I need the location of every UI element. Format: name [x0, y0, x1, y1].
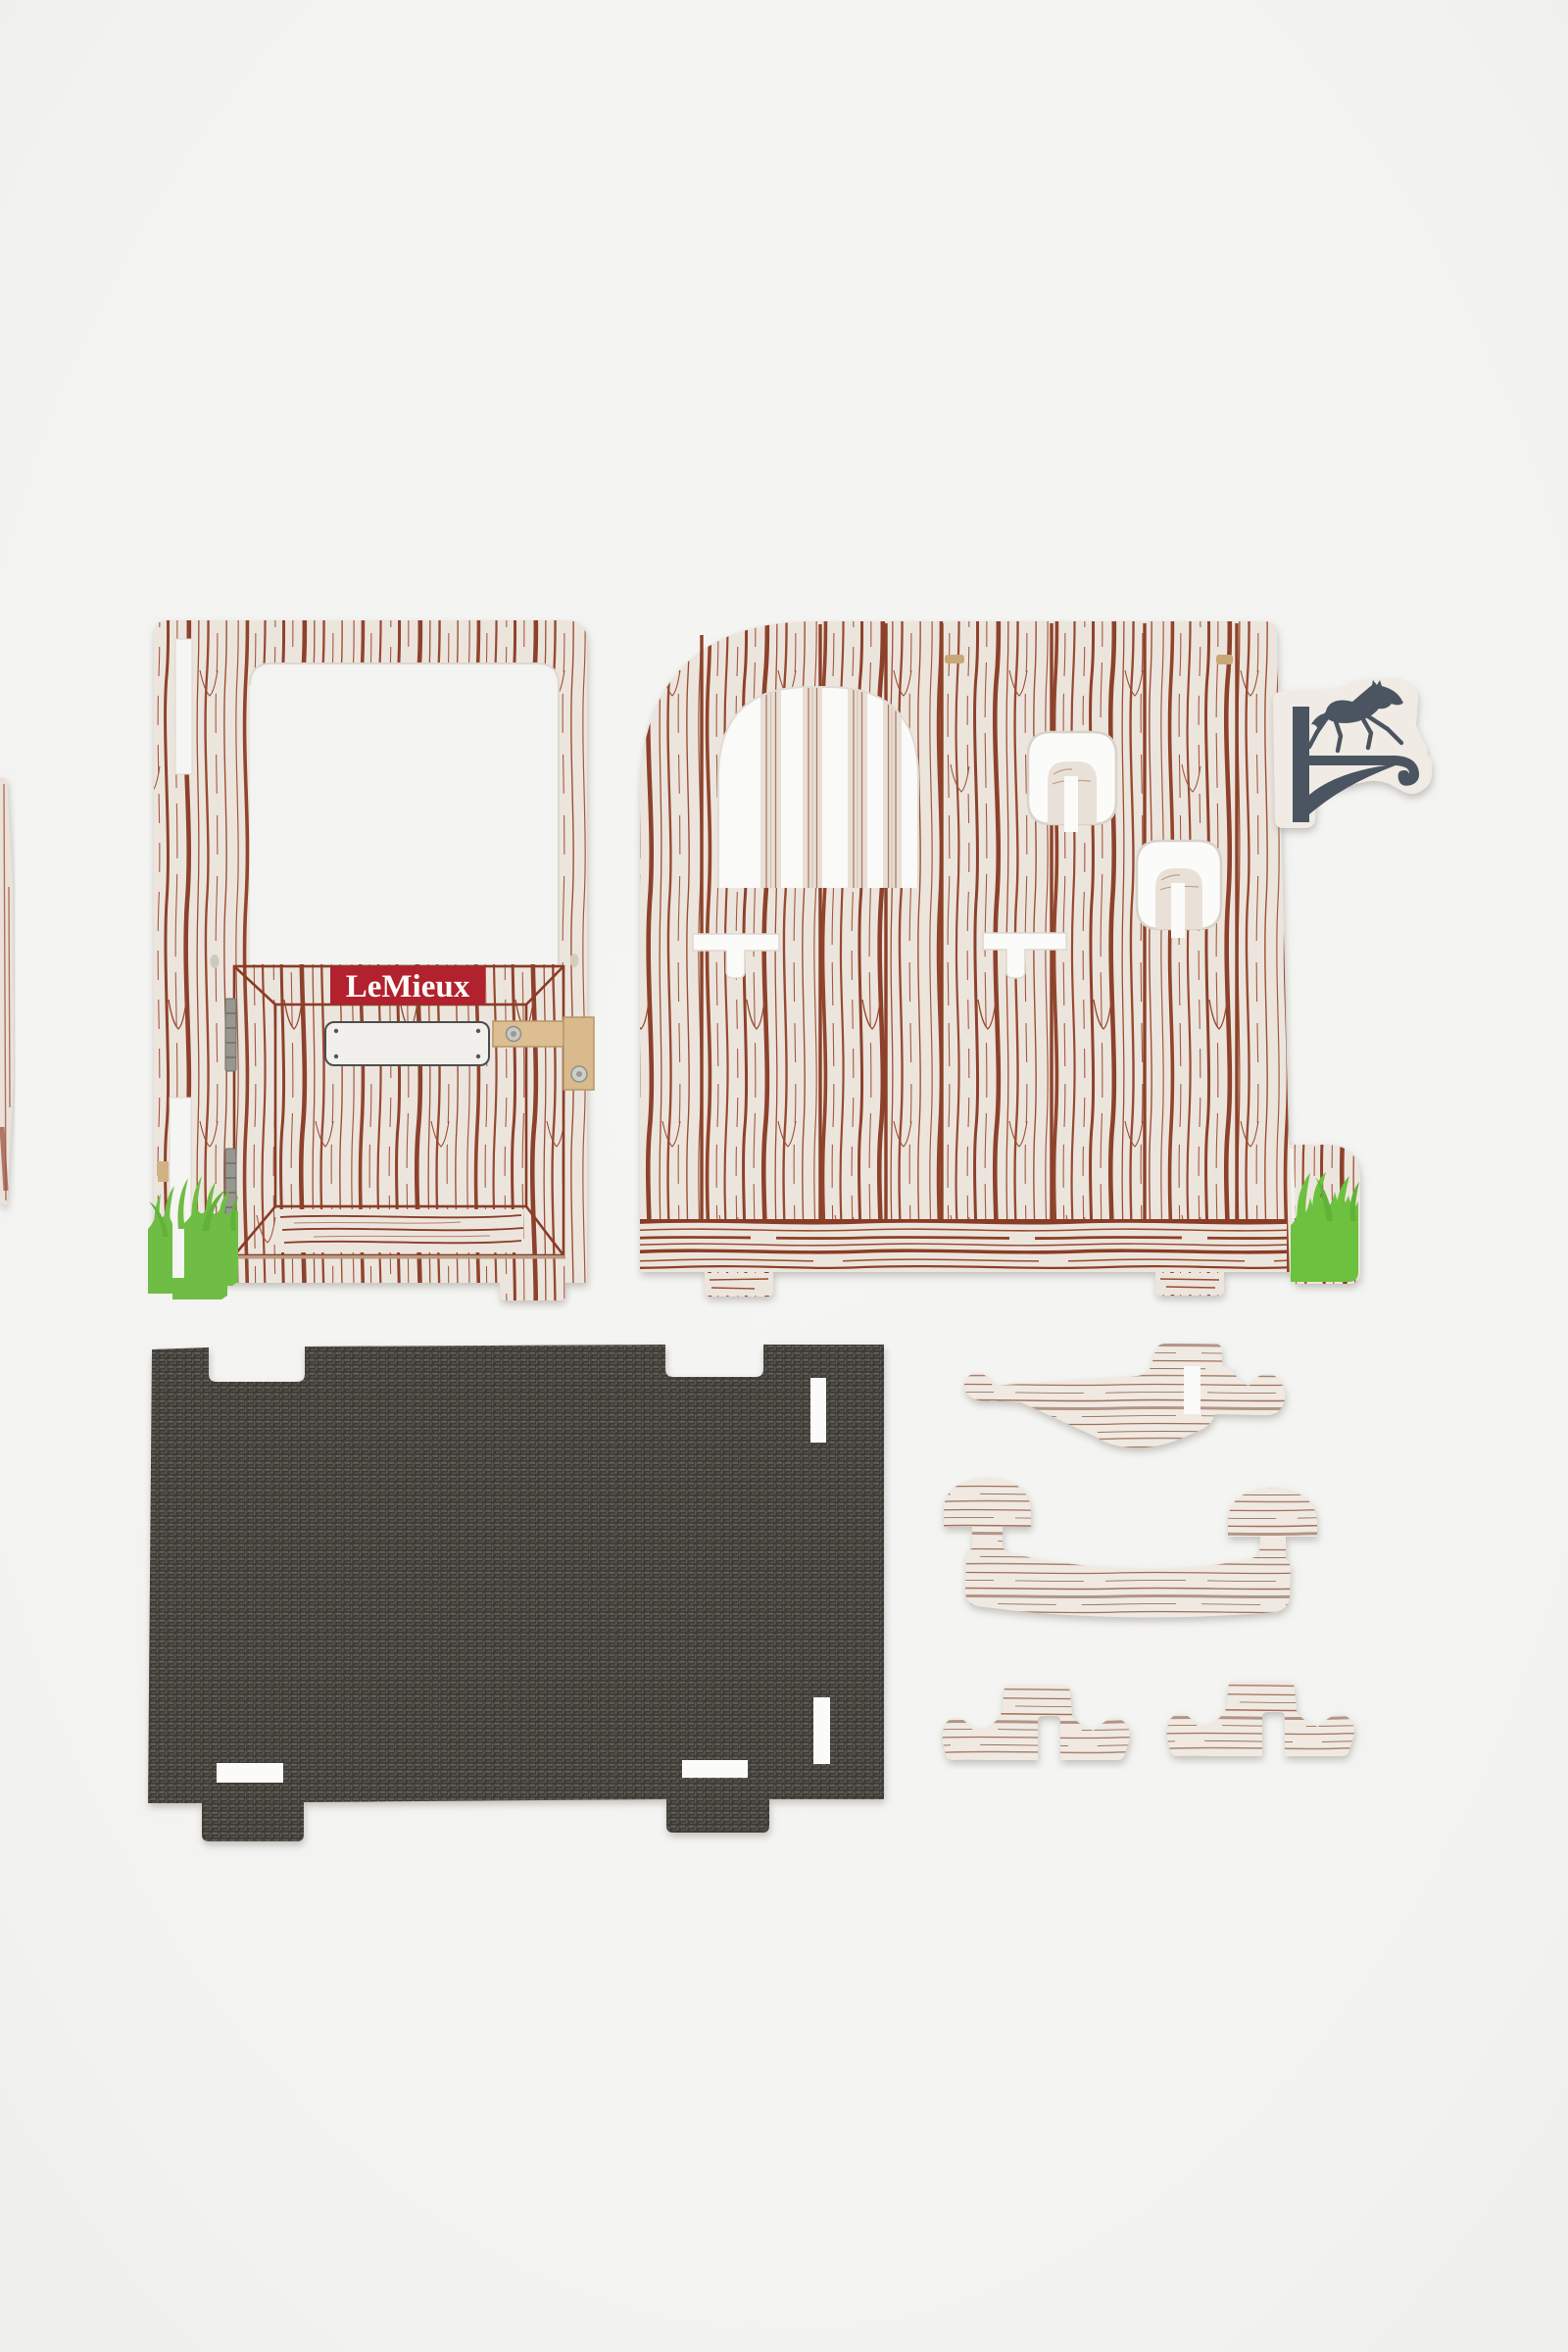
svg-text:LeMieux: LeMieux [346, 969, 470, 1004]
